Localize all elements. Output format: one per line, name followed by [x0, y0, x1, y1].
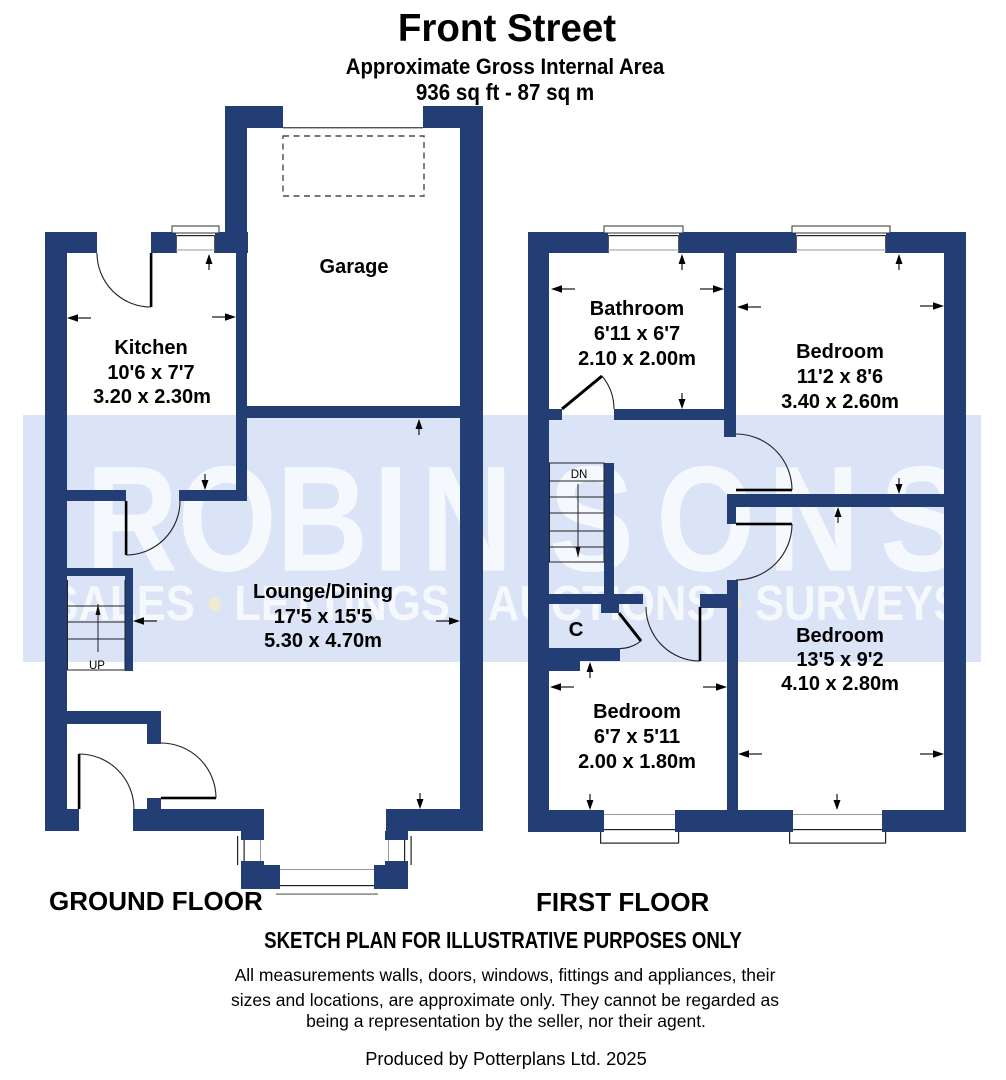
svg-text:Bedroom: Bedroom [796, 341, 884, 363]
svg-text:10'6 x 7'7: 10'6 x 7'7 [107, 362, 194, 384]
svg-text:Bathroom: Bathroom [590, 298, 684, 320]
svg-text:17'5 x 15'5: 17'5 x 15'5 [274, 606, 373, 628]
svg-text:SKETCH PLAN FOR ILLUSTRATIVE P: SKETCH PLAN FOR ILLUSTRATIVE PURPOSES ON… [264, 928, 742, 953]
svg-text:6'7 x 5'11: 6'7 x 5'11 [594, 726, 680, 748]
svg-text:UP: UP [89, 660, 105, 672]
svg-text:Produced by Potterplans Ltd. 2: Produced by Potterplans Ltd. 2025 [365, 1048, 647, 1069]
svg-text:2.10 x 2.00m: 2.10 x 2.00m [578, 348, 696, 370]
svg-text:13'5 x 9'2: 13'5 x 9'2 [796, 649, 883, 671]
svg-text:Front Street: Front Street [398, 7, 616, 50]
svg-text:2.00 x 1.80m: 2.00 x 1.80m [578, 751, 696, 773]
svg-text:Kitchen: Kitchen [114, 337, 187, 359]
svg-text:FIRST FLOOR: FIRST FLOOR [536, 887, 710, 917]
svg-text:936 sq ft - 87 sq m: 936 sq ft - 87 sq m [416, 79, 594, 106]
svg-text:GROUND FLOOR: GROUND FLOOR [49, 886, 263, 916]
svg-text:sizes and locations, are appro: sizes and locations, are approximate onl… [231, 990, 779, 1010]
svg-text:Bedroom: Bedroom [796, 625, 884, 647]
svg-text:being a representation by the: being a representation by the seller, no… [306, 1011, 706, 1031]
svg-text:4.10 x 2.80m: 4.10 x 2.80m [781, 673, 899, 695]
svg-text:3.20 x 2.30m: 3.20 x 2.30m [93, 386, 211, 408]
svg-text:5.30 x 4.70m: 5.30 x 4.70m [264, 630, 382, 652]
svg-text:SALES • LETTINGS • AUCTIONS •: SALES • LETTINGS • AUCTIONS • SURVEYS [49, 576, 962, 631]
svg-text:3.40 x 2.60m: 3.40 x 2.60m [781, 391, 899, 413]
svg-text:11'2 x 8'6: 11'2 x 8'6 [797, 366, 883, 388]
svg-text:All measurements walls, doors,: All measurements walls, doors, windows, … [235, 965, 776, 985]
svg-text:6'11 x 6'7: 6'11 x 6'7 [594, 323, 680, 345]
svg-text:Garage: Garage [320, 256, 389, 278]
svg-text:Approximate Gross Internal Are: Approximate Gross Internal Area [346, 54, 665, 79]
svg-text:DN: DN [571, 469, 588, 481]
svg-text:Bedroom: Bedroom [593, 701, 681, 723]
svg-text:Lounge/Dining: Lounge/Dining [253, 581, 393, 603]
svg-text:C: C [569, 618, 584, 641]
